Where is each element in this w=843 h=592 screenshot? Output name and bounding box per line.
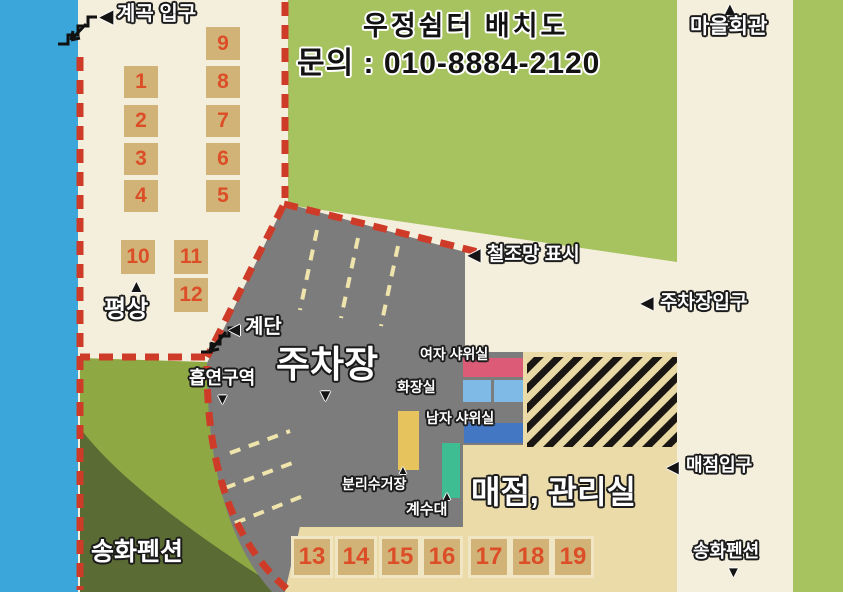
site-box-6: 6: [206, 143, 240, 175]
smoking-area-arrow-icon: ▼: [215, 392, 230, 407]
site-box-9: 9: [206, 27, 240, 60]
valley-entrance-label: 계곡 입구: [117, 4, 196, 24]
map-contact: 문의 : 010-8884-2120: [297, 49, 600, 79]
stairs-arrow-icon: ◀: [229, 322, 240, 336]
smoking-area-label: 흡연구역: [189, 369, 255, 387]
site-box-14: 14: [335, 536, 377, 578]
parking-lot-label: 주차장: [276, 346, 378, 383]
restroom-building-right: [494, 380, 523, 402]
site-box-12: 12: [174, 278, 208, 312]
site-box-2: 2: [124, 105, 158, 137]
store-building-roof: [527, 357, 677, 447]
store-office-label: 매점, 관리실: [471, 476, 636, 508]
site-box-15: 15: [379, 536, 421, 578]
site-box-18: 18: [510, 536, 552, 578]
fence-mark-arrow-icon: ◀: [468, 248, 480, 264]
sink-label: 계수대: [406, 502, 447, 517]
village-hall-label: 마을회관: [690, 16, 767, 37]
parking-entrance-arrow-icon: ◀: [641, 296, 653, 312]
fence-mark-label: 철조망 표시: [487, 245, 580, 264]
map-title: 우정쉼터 배치도: [363, 13, 568, 40]
site-box-4: 4: [124, 180, 158, 212]
site-box-10: 10: [121, 240, 155, 274]
store-entrance-arrow-icon: ◀: [667, 460, 679, 475]
men-shower-building: [464, 423, 523, 443]
site-box-7: 7: [206, 105, 240, 137]
store-entrance-label: 매점입구: [686, 456, 752, 474]
valley-entrance-arrow-icon: ◀: [100, 8, 113, 25]
site-box-19: 19: [552, 536, 594, 578]
site-box-11: 11: [174, 240, 208, 274]
restroom-building-left: [463, 380, 491, 402]
site-box-1: 1: [124, 66, 158, 98]
site-box-16: 16: [421, 536, 463, 578]
bench-label: 평상: [104, 298, 148, 322]
site-box-3: 3: [124, 143, 158, 175]
pension-southeast-label: 송화펜션: [693, 542, 759, 560]
recycling-label: 분리수거장: [342, 477, 406, 491]
site-box-5: 5: [206, 180, 240, 212]
bench-arrow-icon: ▲: [128, 278, 145, 295]
pension-southwest-label: 송화펜션: [91, 540, 183, 565]
site-box-8: 8: [206, 66, 240, 98]
recycling-arrow-icon: ▲: [397, 464, 409, 476]
stairs-label: 계단: [245, 317, 282, 337]
women-shower-label: 여자 샤위실: [420, 347, 488, 361]
men-shower-label: 남자 샤위실: [426, 411, 494, 425]
pension-southeast-arrow-icon: ▼: [726, 565, 741, 580]
recycling-building: [398, 411, 419, 470]
stream-water: [0, 0, 78, 592]
parking-lot-arrow-icon: ▼: [317, 387, 334, 404]
parking-entrance-label: 주차장입구: [660, 293, 747, 312]
site-box-13: 13: [291, 536, 333, 578]
site-box-17: 17: [468, 536, 510, 578]
restroom-label: 화장실: [397, 380, 436, 394]
campsite-map: 우정쉼터 배치도 문의 : 010-8884-2120 ◀ 계곡 입구 ▲ 마을…: [0, 0, 843, 592]
east-field: [793, 0, 843, 592]
